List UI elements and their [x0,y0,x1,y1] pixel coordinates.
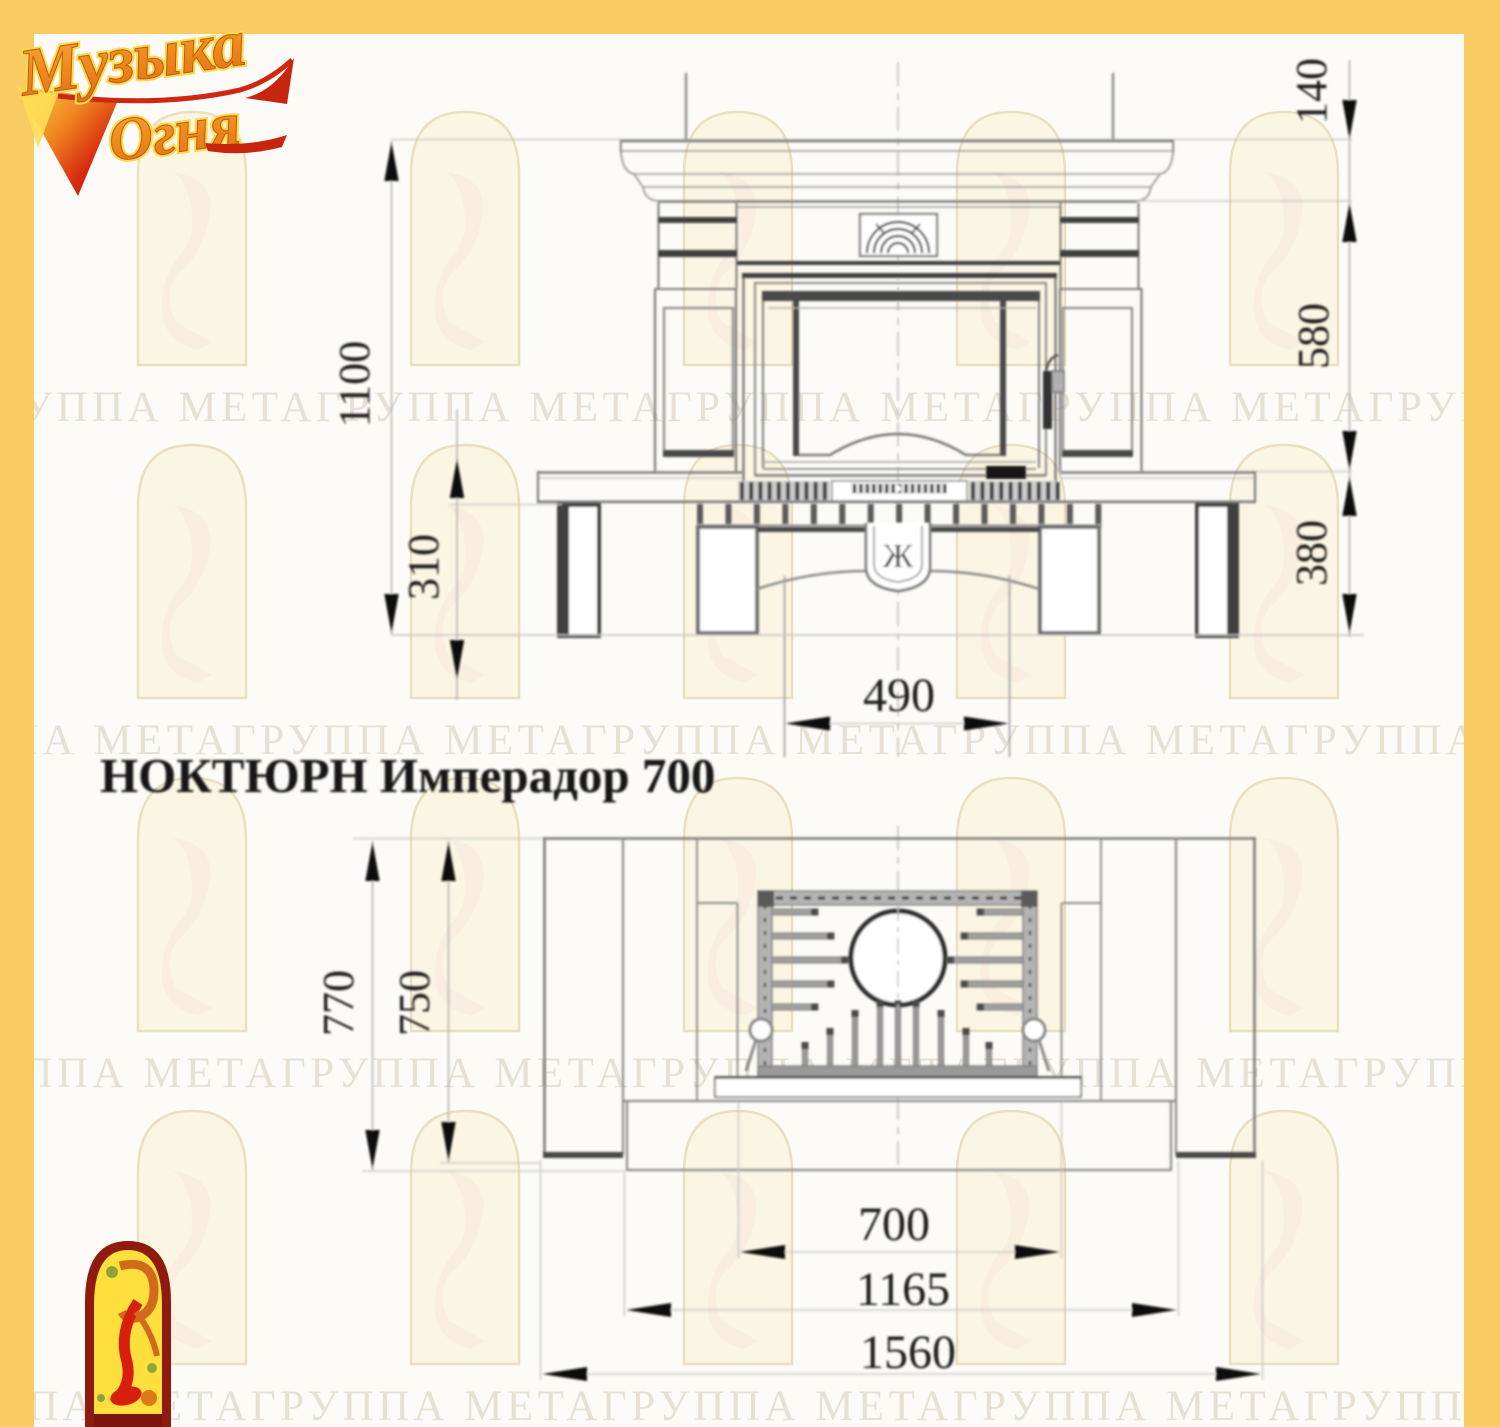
svg-text:140: 140 [1287,58,1336,124]
svg-text:1165: 1165 [856,1263,950,1316]
svg-text:580: 580 [1289,303,1338,369]
svg-text:Ж: Ж [883,538,914,575]
svg-text:700: 700 [858,1198,930,1251]
svg-text:1100: 1100 [330,341,379,427]
svg-text:310: 310 [399,534,448,600]
svg-text:ГРУППА МЕТАГРУППА МЕТАГРУППА М: ГРУППА МЕТАГРУППА МЕТАГРУППА МЕТАГРУППА … [0,384,1500,431]
svg-text:770: 770 [314,970,363,1036]
svg-text:380: 380 [1287,520,1336,586]
svg-text:490: 490 [863,669,935,722]
svg-text:1560: 1560 [860,1326,956,1379]
svg-text:750: 750 [390,970,439,1036]
svg-text:ГРУППА МЕТАГРУППА МЕТАГРУППА М: ГРУППА МЕТАГРУППА МЕТАГРУППА МЕТАГРУППА … [0,1383,1500,1427]
svg-text:НОКТЮРН Имперадор 700: НОКТЮРН Имперадор 700 [100,748,715,803]
